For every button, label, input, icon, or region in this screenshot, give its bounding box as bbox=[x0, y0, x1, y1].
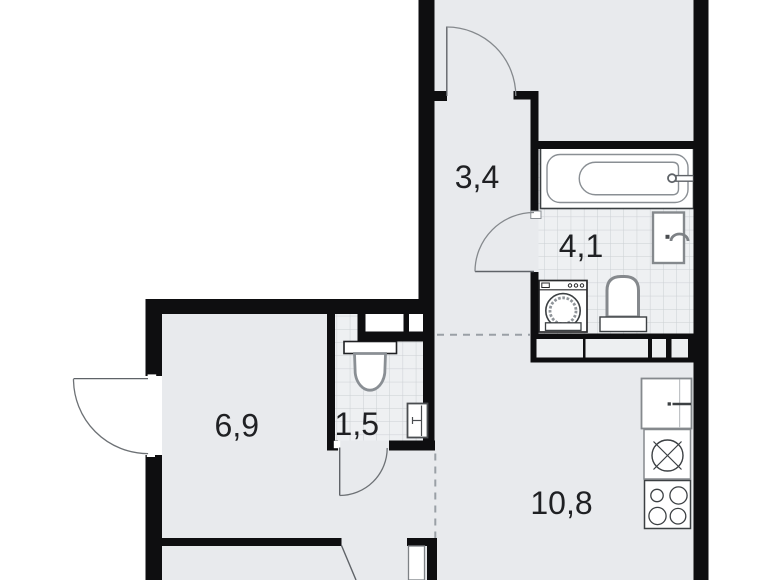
svg-text:6,9: 6,9 bbox=[215, 408, 259, 444]
svg-text:10,8: 10,8 bbox=[530, 485, 592, 521]
svg-text:1,5: 1,5 bbox=[335, 406, 379, 442]
svg-text:3,4: 3,4 bbox=[455, 159, 499, 195]
svg-text:4,1: 4,1 bbox=[559, 228, 603, 264]
